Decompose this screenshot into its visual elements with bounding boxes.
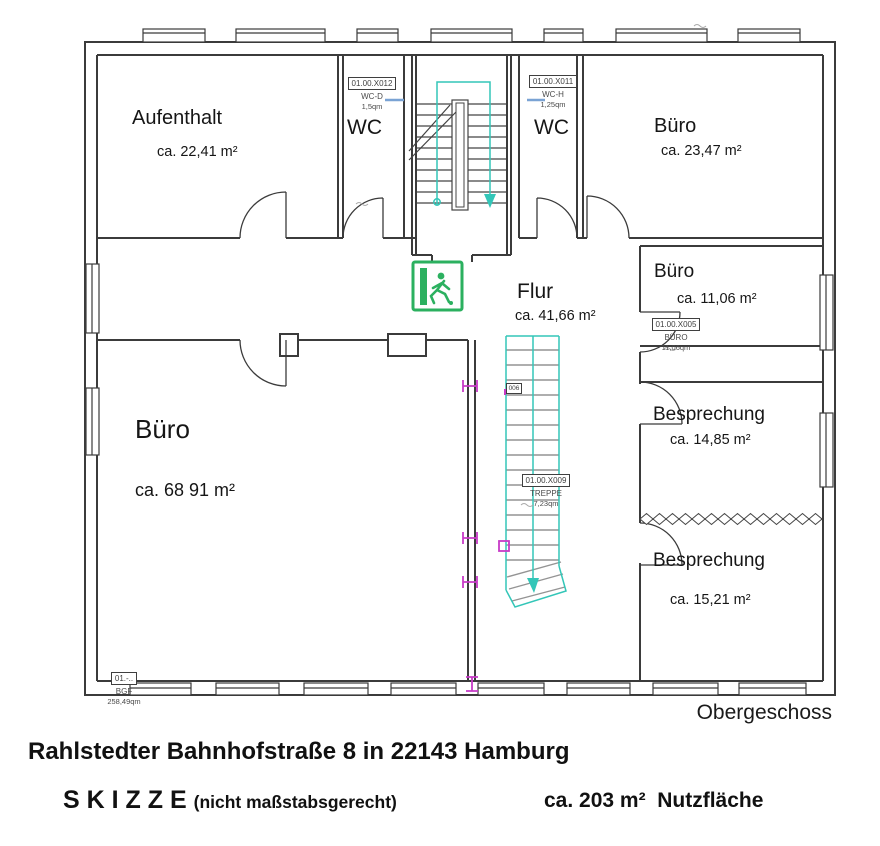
room-tag-buero-name: BÜRO	[646, 333, 706, 342]
room-tag-bgf-area: 258,49qm	[95, 697, 153, 706]
room-label-wc-right: WC	[534, 117, 569, 139]
room-area-besprechung2: ca. 15,21 m²	[670, 593, 751, 608]
partition-wall	[640, 514, 822, 525]
room-area-buero-top: ca. 23,47 m²	[661, 144, 742, 159]
room-label-flur: Flur	[517, 281, 553, 303]
exit-sign-icon	[413, 262, 462, 310]
total-area-label: ca. 203 m² Nutzfläche	[544, 789, 763, 813]
room-tag-wc-h-name: WC-H	[524, 90, 582, 99]
survey-markers	[463, 380, 509, 691]
room-tag-treppe-code: 01.00.X009	[522, 474, 571, 487]
floorplan-canvas: Aufenthalt ca. 22,41 m² WC WC Büro ca. 2…	[0, 0, 880, 846]
room-tag-flur-mini-code: 006	[506, 383, 523, 394]
room-label-buero-main: Büro	[135, 416, 190, 443]
room-label-besprechung2: Besprechung	[653, 551, 765, 571]
room-tag-wc-d-code: 01.00.X012	[348, 77, 397, 90]
sketch-title: S K I Z Z E	[63, 786, 187, 815]
room-label-aufenthalt: Aufenthalt	[132, 108, 222, 129]
upper-staircase	[409, 82, 506, 210]
room-tag-buero-area: 11,06qm	[646, 343, 706, 352]
address-title: Rahlstedter Bahnhofstraße 8 in 22143 Ham…	[28, 738, 569, 766]
room-tag-bgf-code: 01.-..	[111, 672, 137, 685]
room-area-buero-mid: ca. 11,06 m²	[677, 292, 757, 307]
sketch-line: S K I Z Z E (nicht maßstabsgerecht)	[63, 786, 397, 815]
sketch-note: (nicht maßstabsgerecht)	[194, 792, 397, 813]
room-label-buero-mid: Büro	[654, 262, 694, 282]
room-tag-wc-d: 01.00.X012 WC-D 1,5qm	[342, 73, 402, 111]
room-tag-bgf: 01.-.. BGF 258,49qm	[95, 668, 153, 706]
room-label-wc-left: WC	[347, 117, 382, 139]
floor-label: Obergeschoss	[650, 701, 832, 725]
room-label-buero-top: Büro	[654, 116, 696, 137]
room-tag-wc-h-area: 1,25qm	[524, 100, 582, 109]
room-tag-buero: 01.00.X005 BÜRO 11,06qm	[646, 314, 706, 352]
room-tag-wc-d-area: 1,5qm	[342, 102, 402, 111]
room-area-besprechung1: ca. 14,85 m²	[670, 433, 751, 448]
room-label-besprechung1: Besprechung	[653, 405, 765, 425]
room-tag-buero-code: 01.00.X005	[652, 318, 701, 331]
room-tag-wc-h: 01.00.X011 WC-H 1,25qm	[524, 71, 582, 109]
room-tag-treppe-name: TREPPE	[514, 489, 578, 498]
room-area-buero-main: ca. 68 91 m²	[135, 481, 235, 500]
room-area-flur: ca. 41,66 m²	[515, 309, 596, 324]
doors	[240, 192, 682, 565]
room-tag-flur-mini: 006	[501, 377, 527, 395]
room-tag-treppe: 01.00.X009 TREPPE 7,23qm	[514, 470, 578, 508]
room-tag-bgf-name: BGF	[95, 687, 153, 696]
room-area-aufenthalt: ca. 22,41 m²	[157, 145, 238, 160]
room-tag-wc-h-code: 01.00.X011	[529, 75, 577, 88]
room-tag-wc-d-name: WC-D	[342, 92, 402, 101]
room-tag-treppe-area: 7,23qm	[514, 499, 578, 508]
